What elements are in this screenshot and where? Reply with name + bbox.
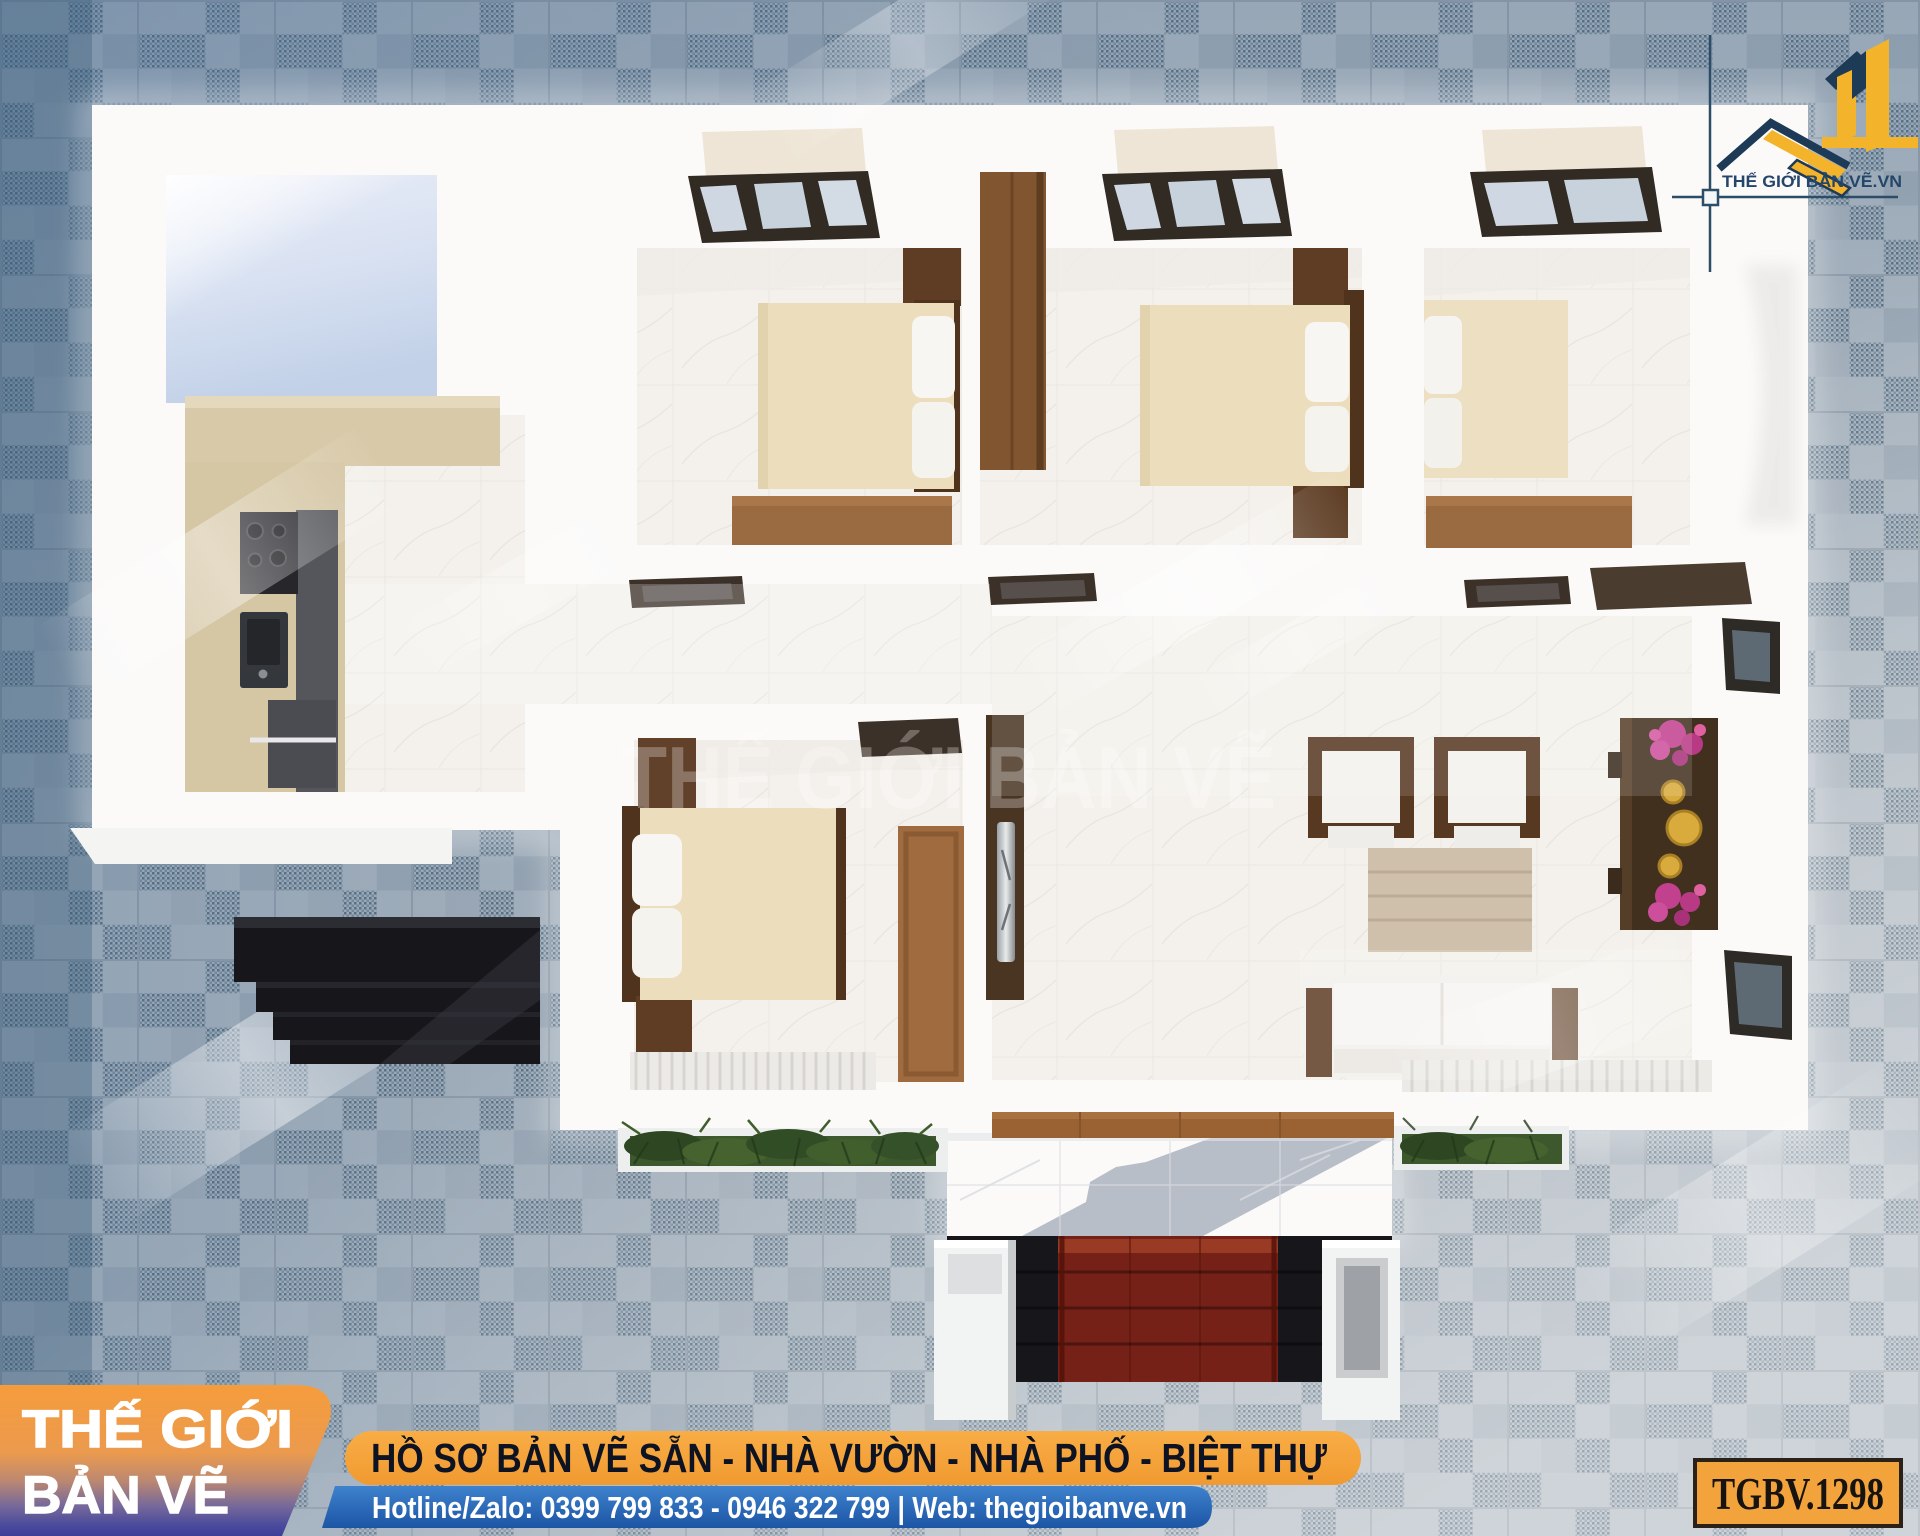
svg-text:THẾ GIỚI: THẾ GIỚI bbox=[22, 1399, 293, 1459]
svg-text:Hotline/Zalo: 0399 799 833 - 0: Hotline/Zalo: 0399 799 833 - 0946 322 79… bbox=[372, 1490, 1187, 1525]
svg-text:BẢN VẼ: BẢN VẼ bbox=[22, 1465, 229, 1525]
svg-text:THẾ GIỚI BẢN VẼ.VN: THẾ GIỚI BẢN VẼ.VN bbox=[1722, 171, 1902, 191]
svg-text:HỒ SƠ BẢN VẼ SẴN - NHÀ VƯỜN -: HỒ SƠ BẢN VẼ SẴN - NHÀ VƯỜN - NHÀ PHỐ - … bbox=[371, 1435, 1328, 1481]
svg-text:THẾ GIỚI BẢN VẼ: THẾ GIỚI BẢN VẼ bbox=[620, 728, 1276, 827]
svg-text:TGBV.1298: TGBV.1298 bbox=[1712, 1468, 1884, 1519]
